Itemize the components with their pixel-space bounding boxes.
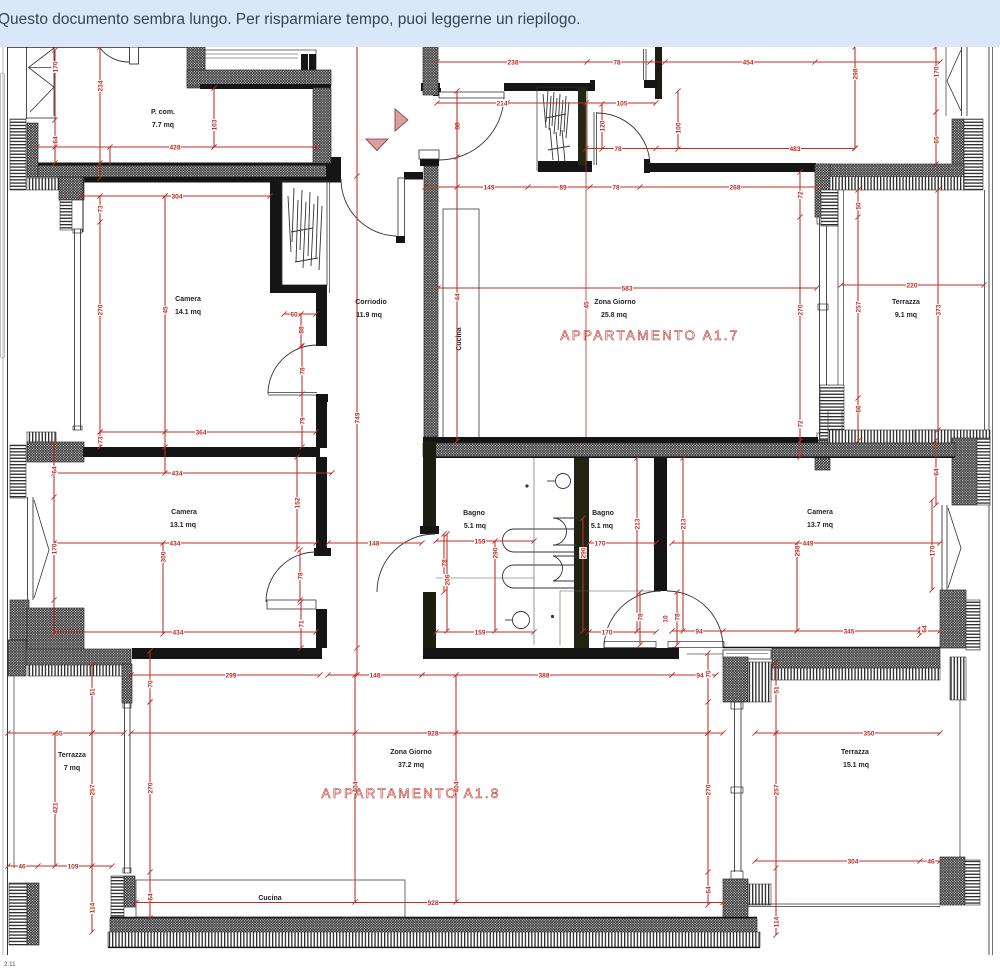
svg-text:434: 434 <box>171 470 182 477</box>
svg-text:88: 88 <box>454 122 461 130</box>
svg-text:170: 170 <box>933 66 940 77</box>
svg-text:7 mq: 7 mq <box>64 765 80 772</box>
svg-text:73: 73 <box>97 205 104 213</box>
svg-text:109: 109 <box>67 863 78 870</box>
svg-text:298: 298 <box>852 68 859 79</box>
svg-text:64: 64 <box>705 886 712 894</box>
svg-text:100: 100 <box>675 122 682 133</box>
svg-text:257: 257 <box>773 784 780 795</box>
svg-text:64: 64 <box>51 466 58 474</box>
svg-text:64: 64 <box>147 893 154 901</box>
svg-text:46: 46 <box>18 863 26 870</box>
svg-text:51: 51 <box>773 686 780 694</box>
svg-text:103: 103 <box>211 119 218 130</box>
svg-text:220: 220 <box>906 282 917 289</box>
svg-text:213: 213 <box>634 518 641 529</box>
svg-text:270: 270 <box>797 304 804 315</box>
svg-text:Bagno: Bagno <box>592 510 614 517</box>
svg-text:APPARTAMENTO A1.7: APPARTAMENTO A1.7 <box>560 328 739 343</box>
svg-text:234: 234 <box>97 80 104 91</box>
svg-text:25.8 mq: 25.8 mq <box>601 312 627 319</box>
svg-text:270: 270 <box>705 784 712 795</box>
svg-text:Zona Giorno: Zona Giorno <box>594 299 636 306</box>
svg-text:Terrazza: Terrazza <box>841 749 869 756</box>
svg-text:60: 60 <box>290 311 298 318</box>
svg-text:Cucina: Cucina <box>258 895 281 902</box>
svg-text:11.9 mq: 11.9 mq <box>356 312 382 319</box>
svg-text:114: 114 <box>773 916 780 927</box>
svg-text:105: 105 <box>616 100 627 107</box>
svg-text:66: 66 <box>855 405 862 413</box>
svg-text:290: 290 <box>492 547 499 558</box>
svg-text:15.1 mq: 15.1 mq <box>843 762 869 769</box>
svg-text:70: 70 <box>705 670 712 678</box>
svg-text:257: 257 <box>855 301 862 312</box>
svg-text:70: 70 <box>147 680 154 688</box>
svg-text:257: 257 <box>89 784 96 795</box>
svg-text:78: 78 <box>614 146 622 153</box>
svg-text:749: 749 <box>354 412 361 423</box>
svg-text:148: 148 <box>368 540 379 547</box>
svg-text:206: 206 <box>444 574 451 585</box>
svg-text:270: 270 <box>147 782 154 793</box>
svg-text:5.1 mq: 5.1 mq <box>591 523 613 530</box>
svg-text:170: 170 <box>929 545 936 556</box>
svg-text:434: 434 <box>169 540 180 547</box>
svg-text:268: 268 <box>729 184 740 191</box>
svg-text:149: 149 <box>483 184 494 191</box>
svg-text:270: 270 <box>97 304 104 315</box>
svg-text:290: 290 <box>580 547 587 558</box>
svg-text:148: 148 <box>369 672 380 679</box>
svg-text:72: 72 <box>797 191 804 199</box>
svg-text:928: 928 <box>427 730 438 737</box>
svg-text:299: 299 <box>225 672 236 679</box>
svg-text:120: 120 <box>599 120 606 131</box>
svg-text:79: 79 <box>299 417 306 425</box>
svg-text:13.7 mq: 13.7 mq <box>807 522 833 529</box>
svg-text:170: 170 <box>51 543 58 554</box>
svg-text:159: 159 <box>474 538 485 545</box>
svg-text:14.1 mq: 14.1 mq <box>175 309 201 316</box>
svg-text:421: 421 <box>52 802 59 813</box>
svg-text:583: 583 <box>621 285 632 292</box>
svg-text:APPARTAMENTO A1.8: APPARTAMENTO A1.8 <box>321 786 500 801</box>
svg-text:Terrazza: Terrazza <box>58 752 86 759</box>
svg-text:94: 94 <box>696 672 704 679</box>
svg-text:345: 345 <box>843 628 854 635</box>
svg-text:Camera: Camera <box>807 509 833 516</box>
svg-text:Zona Giorno: Zona Giorno <box>390 749 432 756</box>
svg-text:Questo documento sembra lungo.: Questo documento sembra lungo. Per rispa… <box>0 11 580 28</box>
svg-text:449: 449 <box>802 540 813 547</box>
svg-text:388: 388 <box>538 672 549 679</box>
svg-text:298: 298 <box>794 545 801 556</box>
svg-text:Camera: Camera <box>171 509 197 516</box>
svg-text:159: 159 <box>474 629 485 636</box>
svg-text:78: 78 <box>674 613 681 621</box>
svg-text:73: 73 <box>97 436 104 444</box>
svg-text:78: 78 <box>612 184 620 191</box>
svg-text:65: 65 <box>933 136 940 144</box>
svg-text:94: 94 <box>695 628 703 635</box>
svg-text:454: 454 <box>742 59 753 66</box>
svg-text:304: 304 <box>171 193 182 200</box>
svg-text:45: 45 <box>583 301 590 309</box>
svg-text:170: 170 <box>601 629 612 636</box>
svg-text:46: 46 <box>927 858 935 865</box>
svg-text:7.7 mq: 7.7 mq <box>152 122 174 129</box>
svg-text:5.1 mq: 5.1 mq <box>464 523 486 530</box>
svg-text:78: 78 <box>613 59 621 66</box>
svg-text:88: 88 <box>298 326 305 334</box>
svg-text:170: 170 <box>52 61 59 72</box>
svg-text:428: 428 <box>169 144 180 151</box>
svg-text:213: 213 <box>680 518 687 529</box>
svg-text:37.2 mq: 37.2 mq <box>398 762 424 769</box>
svg-text:51: 51 <box>89 688 96 696</box>
svg-text:Terrazza: Terrazza <box>892 299 920 306</box>
svg-text:Bagno: Bagno <box>463 510 485 517</box>
svg-text:78: 78 <box>297 572 304 580</box>
svg-text:170: 170 <box>594 540 605 547</box>
svg-text:483: 483 <box>789 146 800 153</box>
svg-text:78: 78 <box>299 367 306 375</box>
svg-text:373: 373 <box>935 304 942 315</box>
svg-text:89: 89 <box>559 184 567 191</box>
svg-text:928: 928 <box>427 900 438 907</box>
svg-text:50: 50 <box>855 202 862 210</box>
svg-text:304: 304 <box>847 858 858 865</box>
svg-text:44: 44 <box>454 293 461 301</box>
svg-text:10: 10 <box>662 615 669 623</box>
svg-text:72: 72 <box>797 420 804 428</box>
svg-text:64: 64 <box>933 468 940 476</box>
svg-text:64: 64 <box>52 136 59 144</box>
svg-text:45: 45 <box>162 306 169 314</box>
svg-text:300: 300 <box>160 551 167 562</box>
svg-text:364: 364 <box>195 429 206 436</box>
svg-text:350: 350 <box>863 730 874 737</box>
svg-text:Camera: Camera <box>175 296 201 303</box>
svg-text:214: 214 <box>496 100 507 107</box>
svg-text:13.1 mq: 13.1 mq <box>170 522 196 529</box>
svg-text:434: 434 <box>172 629 183 636</box>
svg-text:238: 238 <box>507 59 518 66</box>
svg-text:64: 64 <box>921 625 928 633</box>
svg-text:114: 114 <box>89 902 96 913</box>
svg-text:152: 152 <box>294 497 301 508</box>
svg-text:Corriodio: Corriodio <box>355 299 387 306</box>
svg-text:P. com.: P. com. <box>151 109 175 116</box>
svg-text:71: 71 <box>298 620 305 628</box>
svg-text:78: 78 <box>637 613 644 621</box>
svg-text:9.1 mq: 9.1 mq <box>895 312 917 319</box>
svg-text:2.11: 2.11 <box>4 961 16 968</box>
